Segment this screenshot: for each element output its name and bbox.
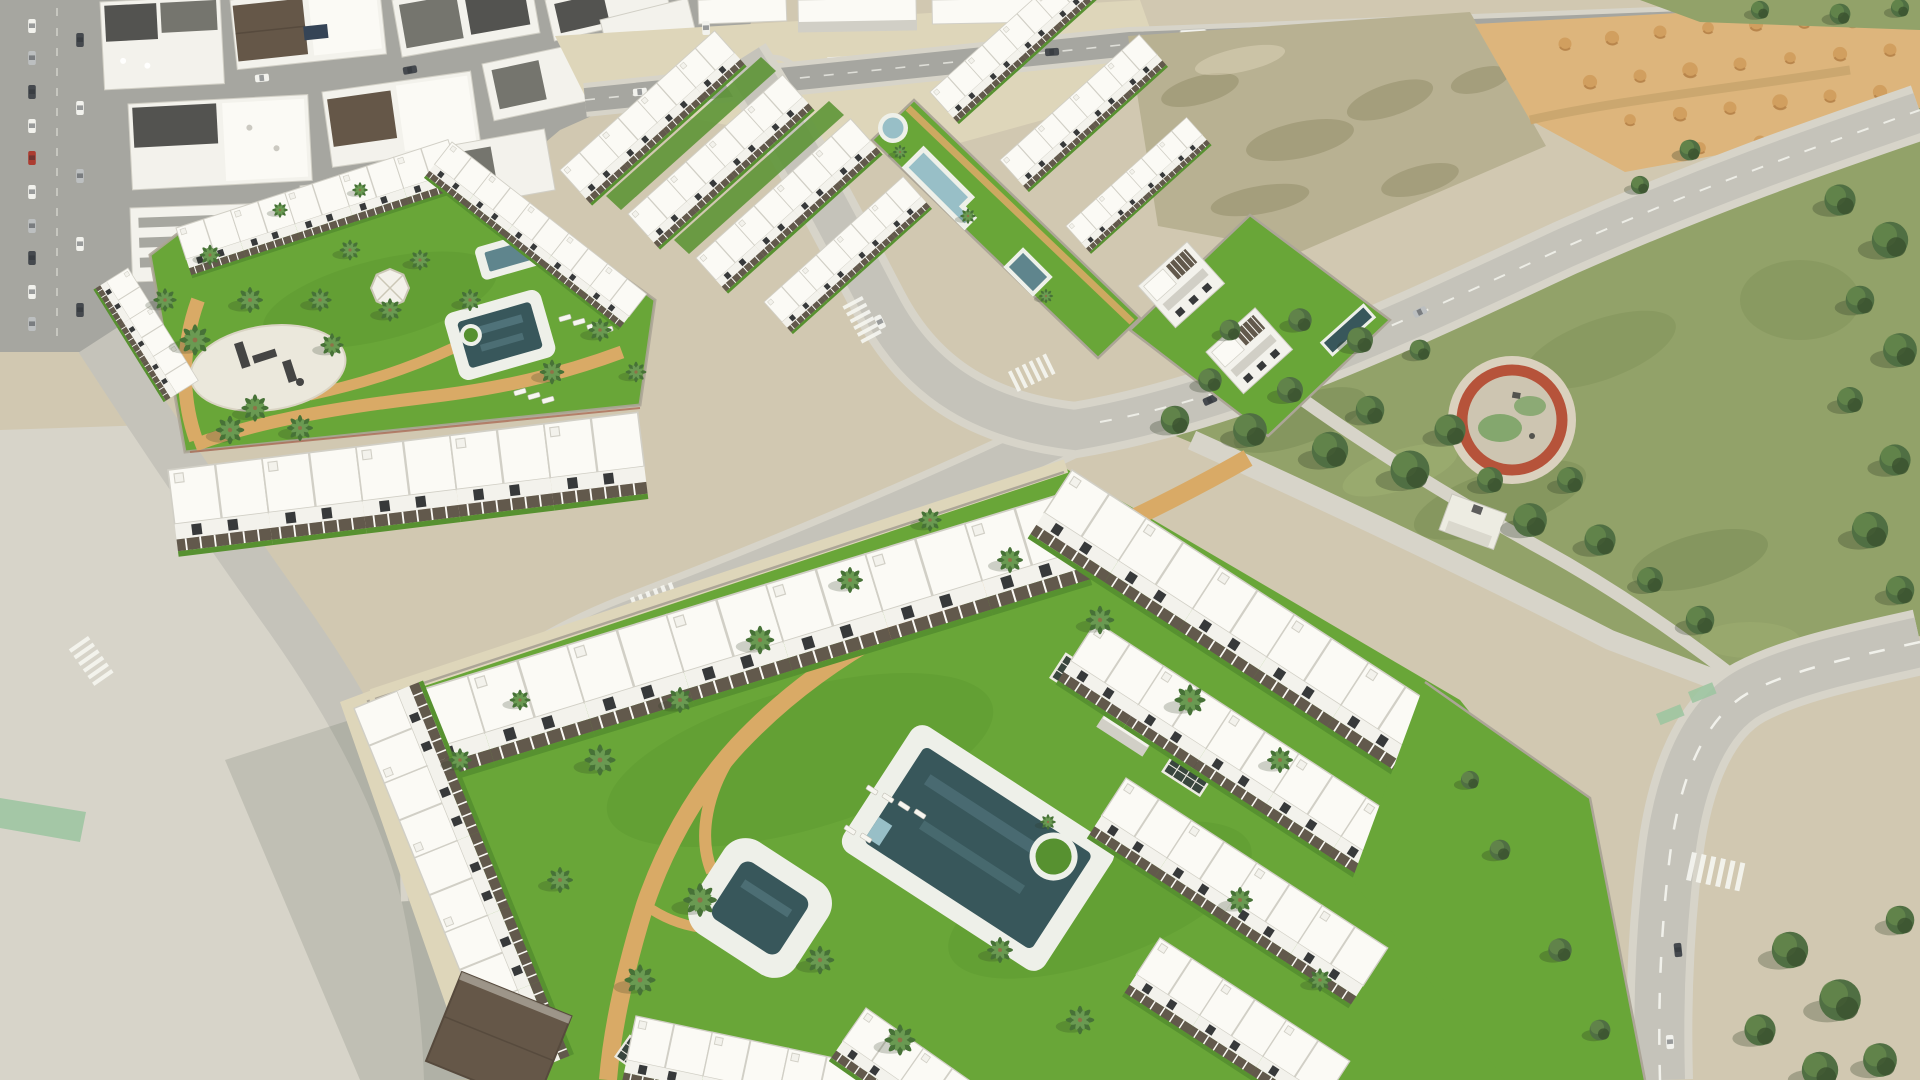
light-wash [0,0,1920,1080]
aerial-render [0,0,1920,1080]
screenshot-root [0,0,1920,1080]
